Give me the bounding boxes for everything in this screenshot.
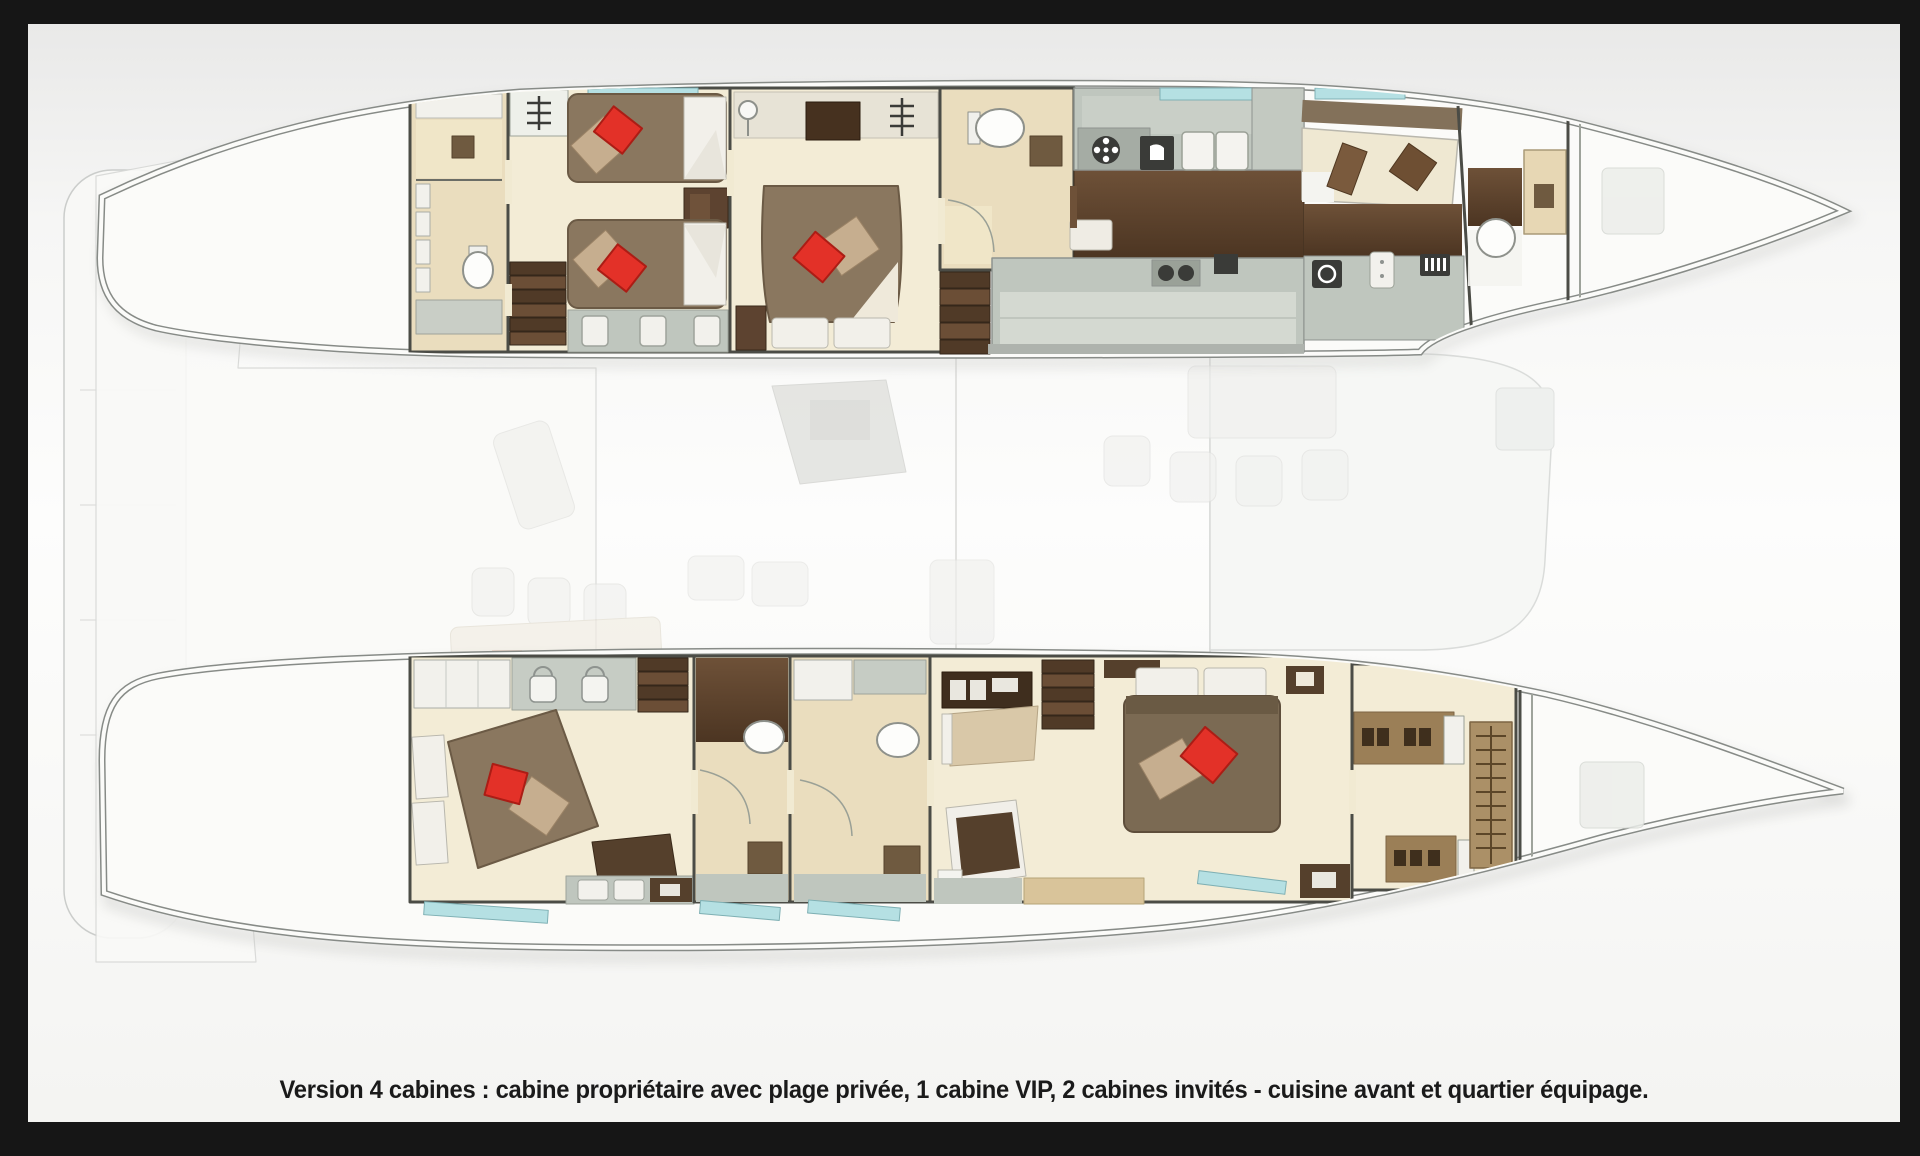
aft-guest-bathroom [410,88,508,352]
shower-floor [944,206,992,264]
vip-bathroom [940,88,1074,270]
hatch [578,880,608,900]
foredeck-hatch [1496,388,1554,450]
pillow-white [834,318,890,348]
burner-icon [1092,136,1120,164]
cabinet [1444,716,1464,764]
catamaran-floor-plan [0,0,1920,1156]
storage-band [934,878,1022,904]
hull-window [1160,88,1260,100]
twin-guest-cabin [508,88,730,352]
toilet [877,723,919,757]
twin-bed-2 [568,220,726,308]
hatch [582,316,608,346]
pillow-white [412,801,448,865]
salon-unit [930,560,994,644]
hatch [694,316,720,346]
tv-cabinet [806,102,860,140]
pillow-white [1136,668,1198,698]
sink-basin [1182,132,1214,170]
hatch [640,316,666,346]
shelf [794,660,852,700]
seat [752,562,808,606]
sink [748,842,782,874]
pillow-white [772,318,828,348]
storage-band [696,874,788,902]
blanket-band [1126,696,1278,714]
bow-locker [1580,762,1644,828]
sink [1534,184,1554,208]
storage-band [794,874,926,902]
owner-bathroom [790,656,930,921]
toilet [976,109,1024,147]
lamp [739,101,757,119]
dining-table [1188,366,1336,438]
toilet [463,252,493,288]
oven-glyph [1150,144,1164,160]
entry-stairs [638,658,688,712]
chair [472,568,514,616]
crew-corridor-floor [1304,204,1462,256]
toilet [744,721,784,753]
chair [1170,452,1216,502]
chair [1236,456,1282,506]
pillow-white [412,735,448,799]
desk [948,706,1038,766]
vanity [416,184,430,208]
framed-floor-plan-image: Version 4 cabines : cabine propriétaire … [0,0,1920,1156]
companionway-stairs [940,272,990,354]
caption: Version 4 cabines : cabine propriétaire … [75,1076,1853,1116]
sink [1030,136,1062,166]
storage-band [416,300,502,334]
cabinet [736,306,766,350]
vanity [416,212,430,236]
owner-stairs [1042,660,1094,729]
guest-bathroom [694,656,790,920]
shower-drain [452,136,474,158]
vip-cabin [730,88,942,352]
sofa-seat [956,812,1020,876]
chair [528,578,570,626]
heater [1370,252,1394,288]
desk-edge [942,714,952,764]
twin-bed-1 [568,94,726,182]
galley-sink-small [1214,254,1238,274]
sink-basin [1216,132,1248,170]
bow-ladder [1470,722,1512,868]
pillow-white [1204,668,1266,698]
cabinet [854,660,926,694]
washer-icon [1312,260,1342,288]
vanity [416,240,430,264]
toilet [1477,219,1515,257]
shelf [414,660,510,708]
head-floor [1468,168,1522,226]
counter-end [1252,88,1304,170]
seat [688,556,744,600]
helm-seat [810,400,870,440]
chair [1104,436,1150,486]
nightstand-top [690,194,710,222]
aft-guest-cabin [410,656,694,923]
owner-cabin [930,656,1352,904]
side-sole [1024,878,1144,904]
bow-locker [1602,168,1664,234]
inboard-wall-band [988,344,1304,354]
sink [884,846,920,878]
hatch [614,880,644,900]
chair [1302,450,1348,500]
vanity [416,268,430,292]
cabin-stairs [510,262,566,345]
